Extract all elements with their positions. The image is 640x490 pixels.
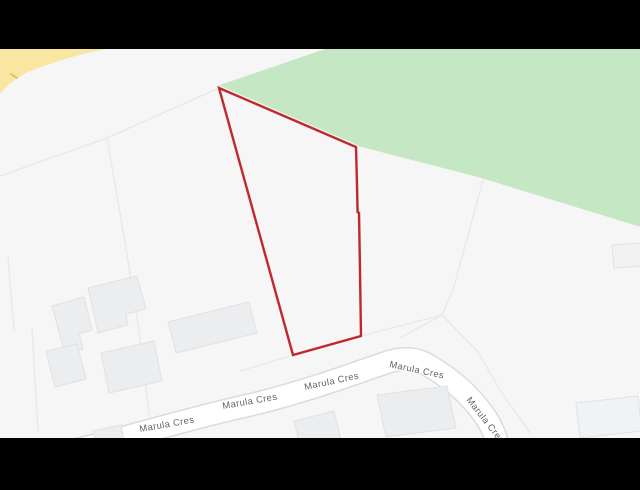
- map-canvas[interactable]: Marula CresMarula CresMarula CresMarula …: [0, 49, 640, 438]
- letterbox-bottom: [0, 438, 640, 490]
- map-screenshot: Marula CresMarula CresMarula CresMarula …: [0, 0, 640, 490]
- building-footprint: [377, 386, 456, 437]
- letterbox-top: [0, 0, 640, 49]
- building-footprint: [576, 396, 640, 438]
- map-svg: Marula CresMarula CresMarula CresMarula …: [0, 49, 640, 438]
- building-footprint: [612, 243, 640, 268]
